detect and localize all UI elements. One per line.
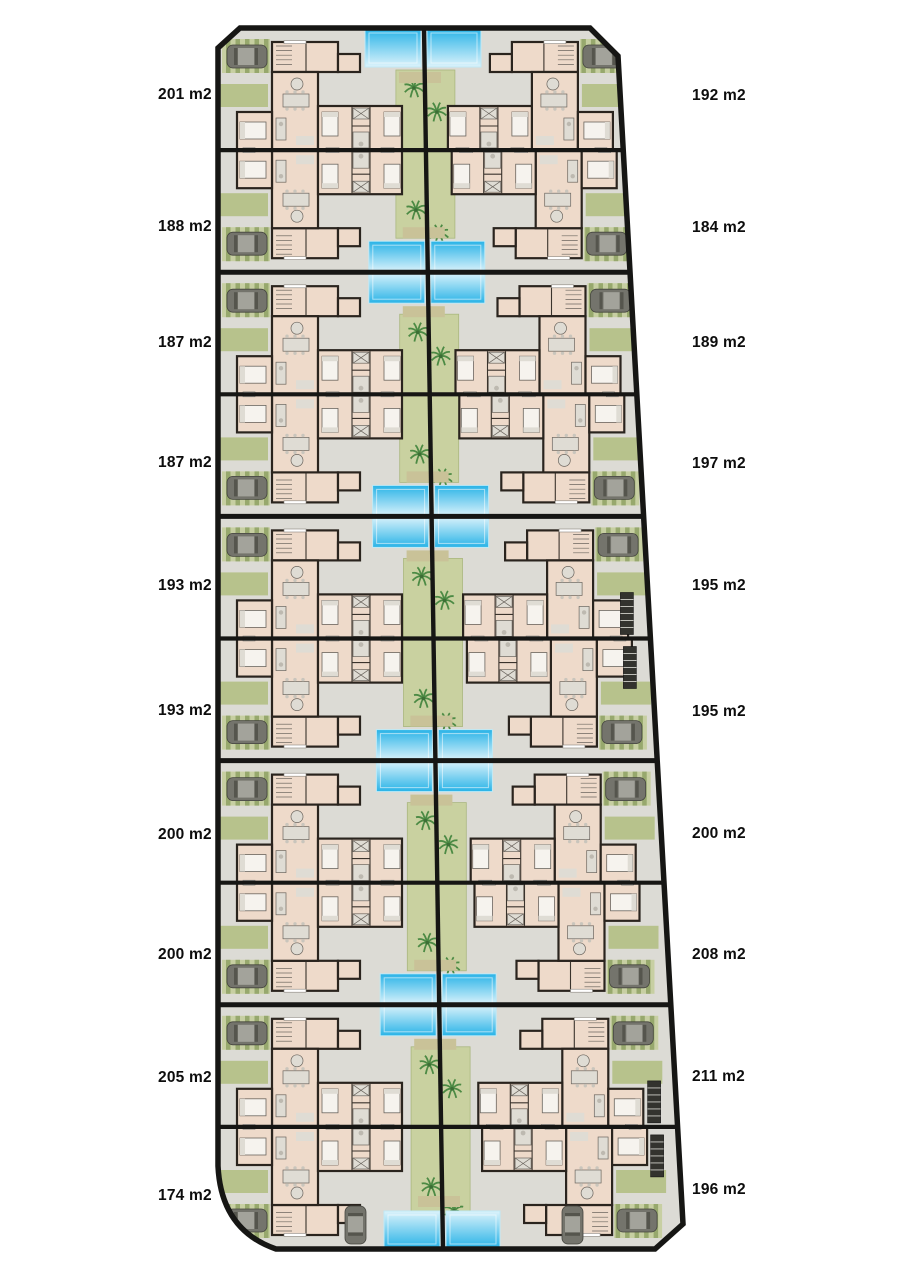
car	[562, 1206, 583, 1244]
car	[606, 778, 646, 801]
pergola	[651, 1135, 664, 1177]
parking-pad	[584, 227, 632, 261]
area-label-right-5: 195 m2	[692, 577, 746, 595]
car	[613, 1022, 653, 1045]
area-label-right-2: 184 m2	[692, 219, 746, 237]
parking-pad	[222, 716, 270, 750]
car	[617, 1209, 657, 1232]
car	[587, 232, 627, 255]
area-label-right-1: 192 m2	[692, 87, 746, 105]
car	[227, 476, 267, 499]
car	[227, 1022, 267, 1045]
car	[591, 289, 631, 312]
area-label-right-4: 197 m2	[692, 455, 746, 473]
car	[227, 45, 267, 68]
parking-pad	[591, 471, 639, 505]
car	[227, 533, 267, 556]
pool	[384, 1211, 440, 1248]
area-label-left-3: 187 m2	[158, 334, 212, 352]
pool	[446, 1211, 500, 1248]
area-label-left-10: 174 m2	[158, 1187, 212, 1205]
parking-pad	[610, 1016, 658, 1050]
area-label-right-3: 189 m2	[692, 334, 746, 352]
area-label-right-7: 200 m2	[692, 825, 746, 843]
area-label-left-4: 187 m2	[158, 454, 212, 472]
area-label-right-10: 196 m2	[692, 1181, 746, 1199]
pergola	[623, 647, 636, 689]
parking-pad	[614, 1204, 662, 1238]
car	[227, 778, 267, 801]
parking-pad	[222, 960, 270, 994]
parking-pad	[222, 527, 270, 561]
car	[227, 232, 267, 255]
parking-pad	[222, 39, 270, 73]
parking-pad	[595, 527, 643, 561]
area-label-left-5: 193 m2	[158, 577, 212, 595]
car	[610, 965, 650, 988]
car	[594, 476, 634, 499]
car	[227, 721, 267, 744]
area-label-left-1: 201 m2	[158, 86, 212, 104]
pool	[427, 29, 481, 67]
area-label-right-8: 208 m2	[692, 946, 746, 964]
area-label-right-9: 211 m2	[692, 1068, 745, 1086]
parking-pad	[222, 772, 270, 806]
pergola	[620, 593, 633, 635]
parking-pad	[222, 227, 270, 261]
car	[227, 289, 267, 312]
car	[602, 721, 642, 744]
car	[227, 965, 267, 988]
parking-pad	[222, 471, 270, 505]
floorplan-page: 201 m2188 m2187 m2187 m2193 m2193 m2200 …	[0, 0, 905, 1280]
area-label-left-8: 200 m2	[158, 946, 212, 964]
car	[598, 533, 638, 556]
area-label-left-9: 205 m2	[158, 1069, 212, 1087]
parking-pad	[603, 772, 651, 806]
site-plan-drawing	[0, 0, 905, 1280]
parking-pad	[222, 283, 270, 317]
area-label-left-7: 200 m2	[158, 826, 212, 844]
area-label-left-2: 188 m2	[158, 218, 212, 236]
parking-pad	[222, 1016, 270, 1050]
pergola	[648, 1081, 661, 1123]
area-label-left-6: 193 m2	[158, 702, 212, 720]
area-label-right-6: 195 m2	[692, 703, 746, 721]
parking-pad	[599, 716, 647, 750]
car	[345, 1206, 366, 1244]
parking-pad	[607, 960, 655, 994]
pool	[365, 29, 421, 67]
site-interior	[212, 28, 684, 1249]
